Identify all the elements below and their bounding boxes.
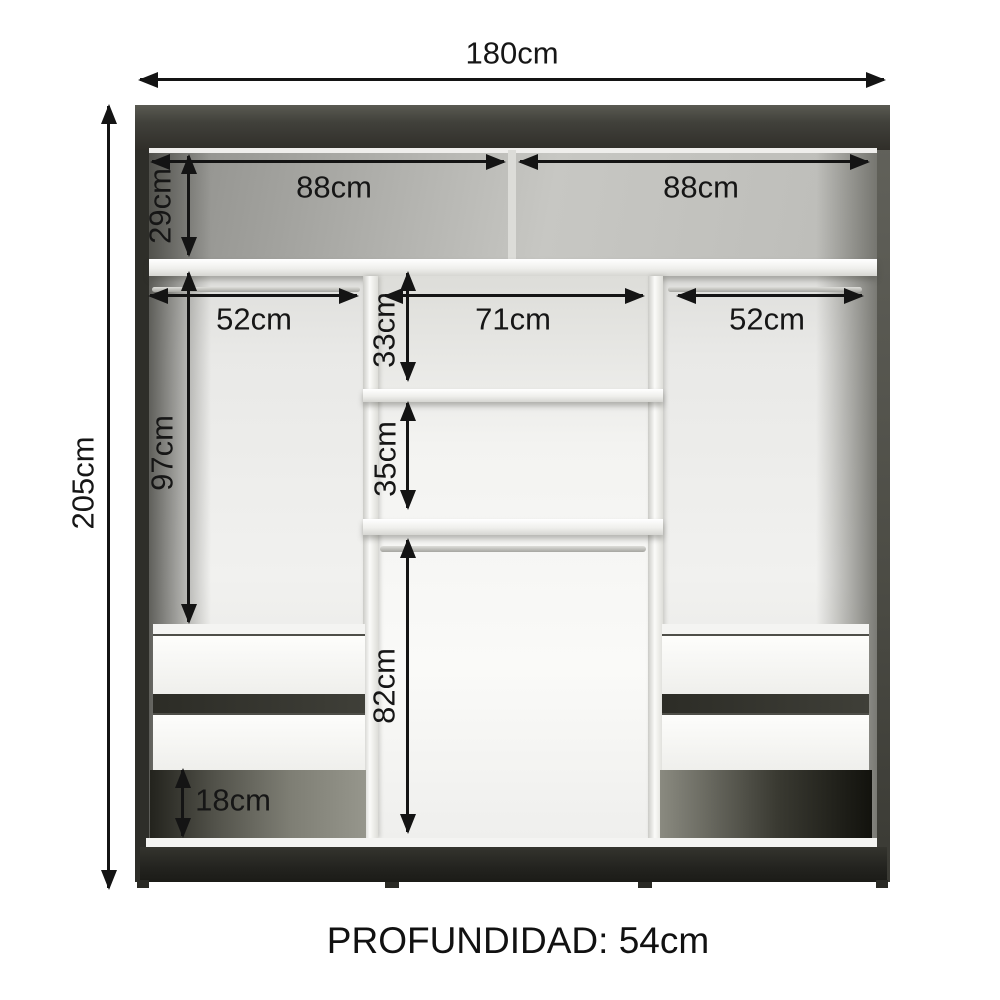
plinth-base — [140, 847, 887, 882]
arrow-total-width — [140, 78, 884, 81]
arrow-base-gap-height — [181, 770, 184, 836]
left-drawer-unit-top — [153, 624, 365, 634]
arrow-center-width — [385, 294, 643, 297]
arrow-left-width — [150, 294, 357, 297]
cabinet-top-panel — [135, 105, 890, 150]
cabinet-foot — [137, 880, 149, 888]
right-drawer-unit-top — [662, 624, 869, 634]
arrow-center-lower-height — [406, 540, 409, 832]
cabinet-right-side-panel — [877, 105, 890, 882]
label-right-width: 52cm — [729, 304, 805, 335]
label-center-upper-height: 33cm — [369, 292, 400, 368]
arrow-top-right-width — [520, 160, 868, 163]
wardrobe-dimension-diagram: 180cm 205cm 88cm 88cm 29cm 52cm 71cm 52c… — [0, 0, 1000, 1000]
arrow-left-hanging-height — [187, 273, 190, 622]
cabinet-foot — [638, 882, 652, 888]
center-column-interior — [378, 276, 648, 838]
cabinet-foot — [385, 882, 399, 888]
arrow-center-upper-height — [406, 273, 409, 380]
label-top-right-width: 88cm — [663, 172, 739, 203]
right-under-drawer-shadow — [660, 770, 872, 838]
center-column-right-wall — [648, 276, 663, 838]
depth-note: PROFUNDIDAD: 54cm — [327, 920, 709, 962]
arrow-right-width — [678, 294, 862, 297]
left-drawer-gap — [153, 694, 365, 713]
right-drawer-1 — [662, 634, 869, 694]
label-total-height: 205cm — [68, 436, 99, 529]
label-center-lower-height: 82cm — [369, 648, 400, 724]
label-base-gap-height: 18cm — [195, 785, 271, 816]
center-shelf-lower — [363, 519, 663, 535]
cabinet-foot — [876, 880, 888, 888]
arrow-center-middle-height — [406, 403, 409, 508]
arrow-total-height — [107, 106, 110, 888]
label-top-left-width: 88cm — [296, 172, 372, 203]
full-width-shelf — [149, 259, 877, 276]
right-drawer-2 — [662, 713, 869, 770]
arrow-top-section-height — [187, 156, 190, 255]
left-drawer-2 — [153, 713, 365, 770]
label-center-middle-height: 35cm — [370, 421, 401, 497]
label-left-width: 52cm — [216, 304, 292, 335]
right-drawer-gap — [662, 694, 869, 713]
right-hanging-rod — [668, 287, 862, 292]
label-center-width: 71cm — [475, 304, 551, 335]
label-left-hanging-height: 97cm — [147, 415, 178, 491]
arrow-top-left-width — [152, 160, 504, 163]
upper-center-divider — [508, 150, 516, 262]
plinth-highlight — [146, 838, 877, 847]
label-total-width: 180cm — [465, 38, 558, 69]
left-drawer-1 — [153, 634, 365, 694]
center-hanging-rod — [380, 546, 646, 552]
label-top-section-height: 29cm — [145, 168, 176, 244]
